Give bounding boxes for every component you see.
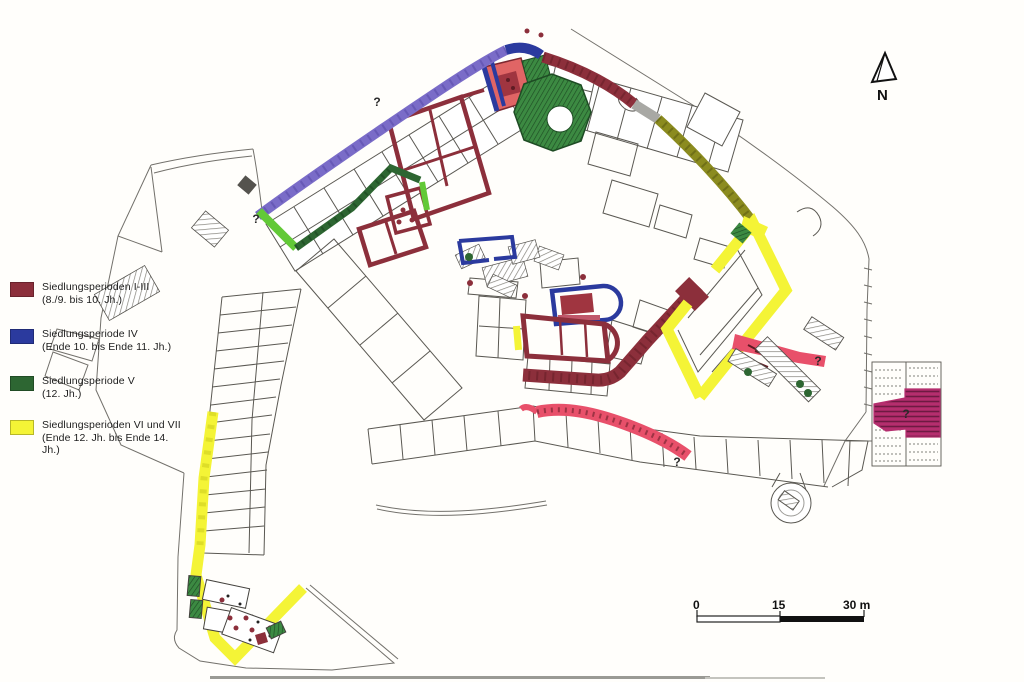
legend-sublabel: (8./9. bis 10. Jh.): [42, 294, 149, 307]
scale-bar: 0 15 30 m: [693, 598, 870, 622]
question-mark: ?: [673, 455, 680, 469]
trenches-right: [728, 317, 844, 402]
legend-item-period6-7: Siedlungsperioden VI und VII (Ende 12. J…: [8, 419, 188, 457]
legend-label: Siedlungsperioden VI und VII: [42, 419, 188, 432]
legend-label: Siedlungsperiode IV: [42, 328, 171, 341]
question-mark: ?: [902, 407, 909, 421]
legend-label: Siedlungsperioden I-III: [42, 281, 149, 294]
green-find-spot: [465, 253, 473, 261]
southwest-wing: [296, 239, 462, 420]
site-plan-page: ? ? ? ? ? N 0 15 30 m Siedlungsperioden …: [0, 0, 1024, 682]
scan-artifact: [210, 676, 825, 679]
legend-swatch-period1-3: [10, 282, 34, 297]
scale-tick-0: 0: [693, 598, 700, 612]
legend-swatch-period5: [10, 376, 34, 391]
legend-swatch-period6-7: [10, 420, 34, 435]
legend-sublabel: (Ende 10. bis Ende 11. Jh.): [42, 341, 171, 354]
west-wing: [203, 289, 301, 555]
yellow-fragment-church: [513, 326, 522, 351]
octagon-tower-period5: [514, 74, 591, 151]
excavation-hatch-central: [455, 240, 564, 298]
scale-tick-15: 15: [772, 598, 786, 612]
legend-sublabel: (Ende 12. Jh. bis Ende 14. Jh.): [42, 432, 188, 457]
question-mark: ?: [252, 212, 259, 226]
legend-item-period5: Siedlungsperiode V (12. Jh.): [8, 375, 135, 400]
chapel-interior-masonry: [560, 293, 594, 315]
question-mark: ?: [814, 354, 821, 368]
north-arrow: N: [872, 53, 896, 104]
legend-label: Siedlungsperiode V: [42, 375, 135, 388]
legend-sublabel: (12. Jh.): [42, 388, 135, 401]
legend-swatch-period4: [10, 329, 34, 344]
north-label: N: [877, 87, 888, 104]
scale-tick-30: 30 m: [843, 598, 870, 612]
scale-bar-open-half: [697, 616, 780, 622]
legend-item-period1-3: Siedlungsperioden I-III (8./9. bis 10. J…: [8, 281, 149, 306]
legend-item-period4: Siedlungsperiode IV (Ende 10. bis Ende 1…: [8, 328, 171, 353]
church-period1-3: [523, 316, 617, 361]
question-mark: ?: [373, 95, 380, 109]
scale-bar-solid-half: [780, 616, 864, 622]
